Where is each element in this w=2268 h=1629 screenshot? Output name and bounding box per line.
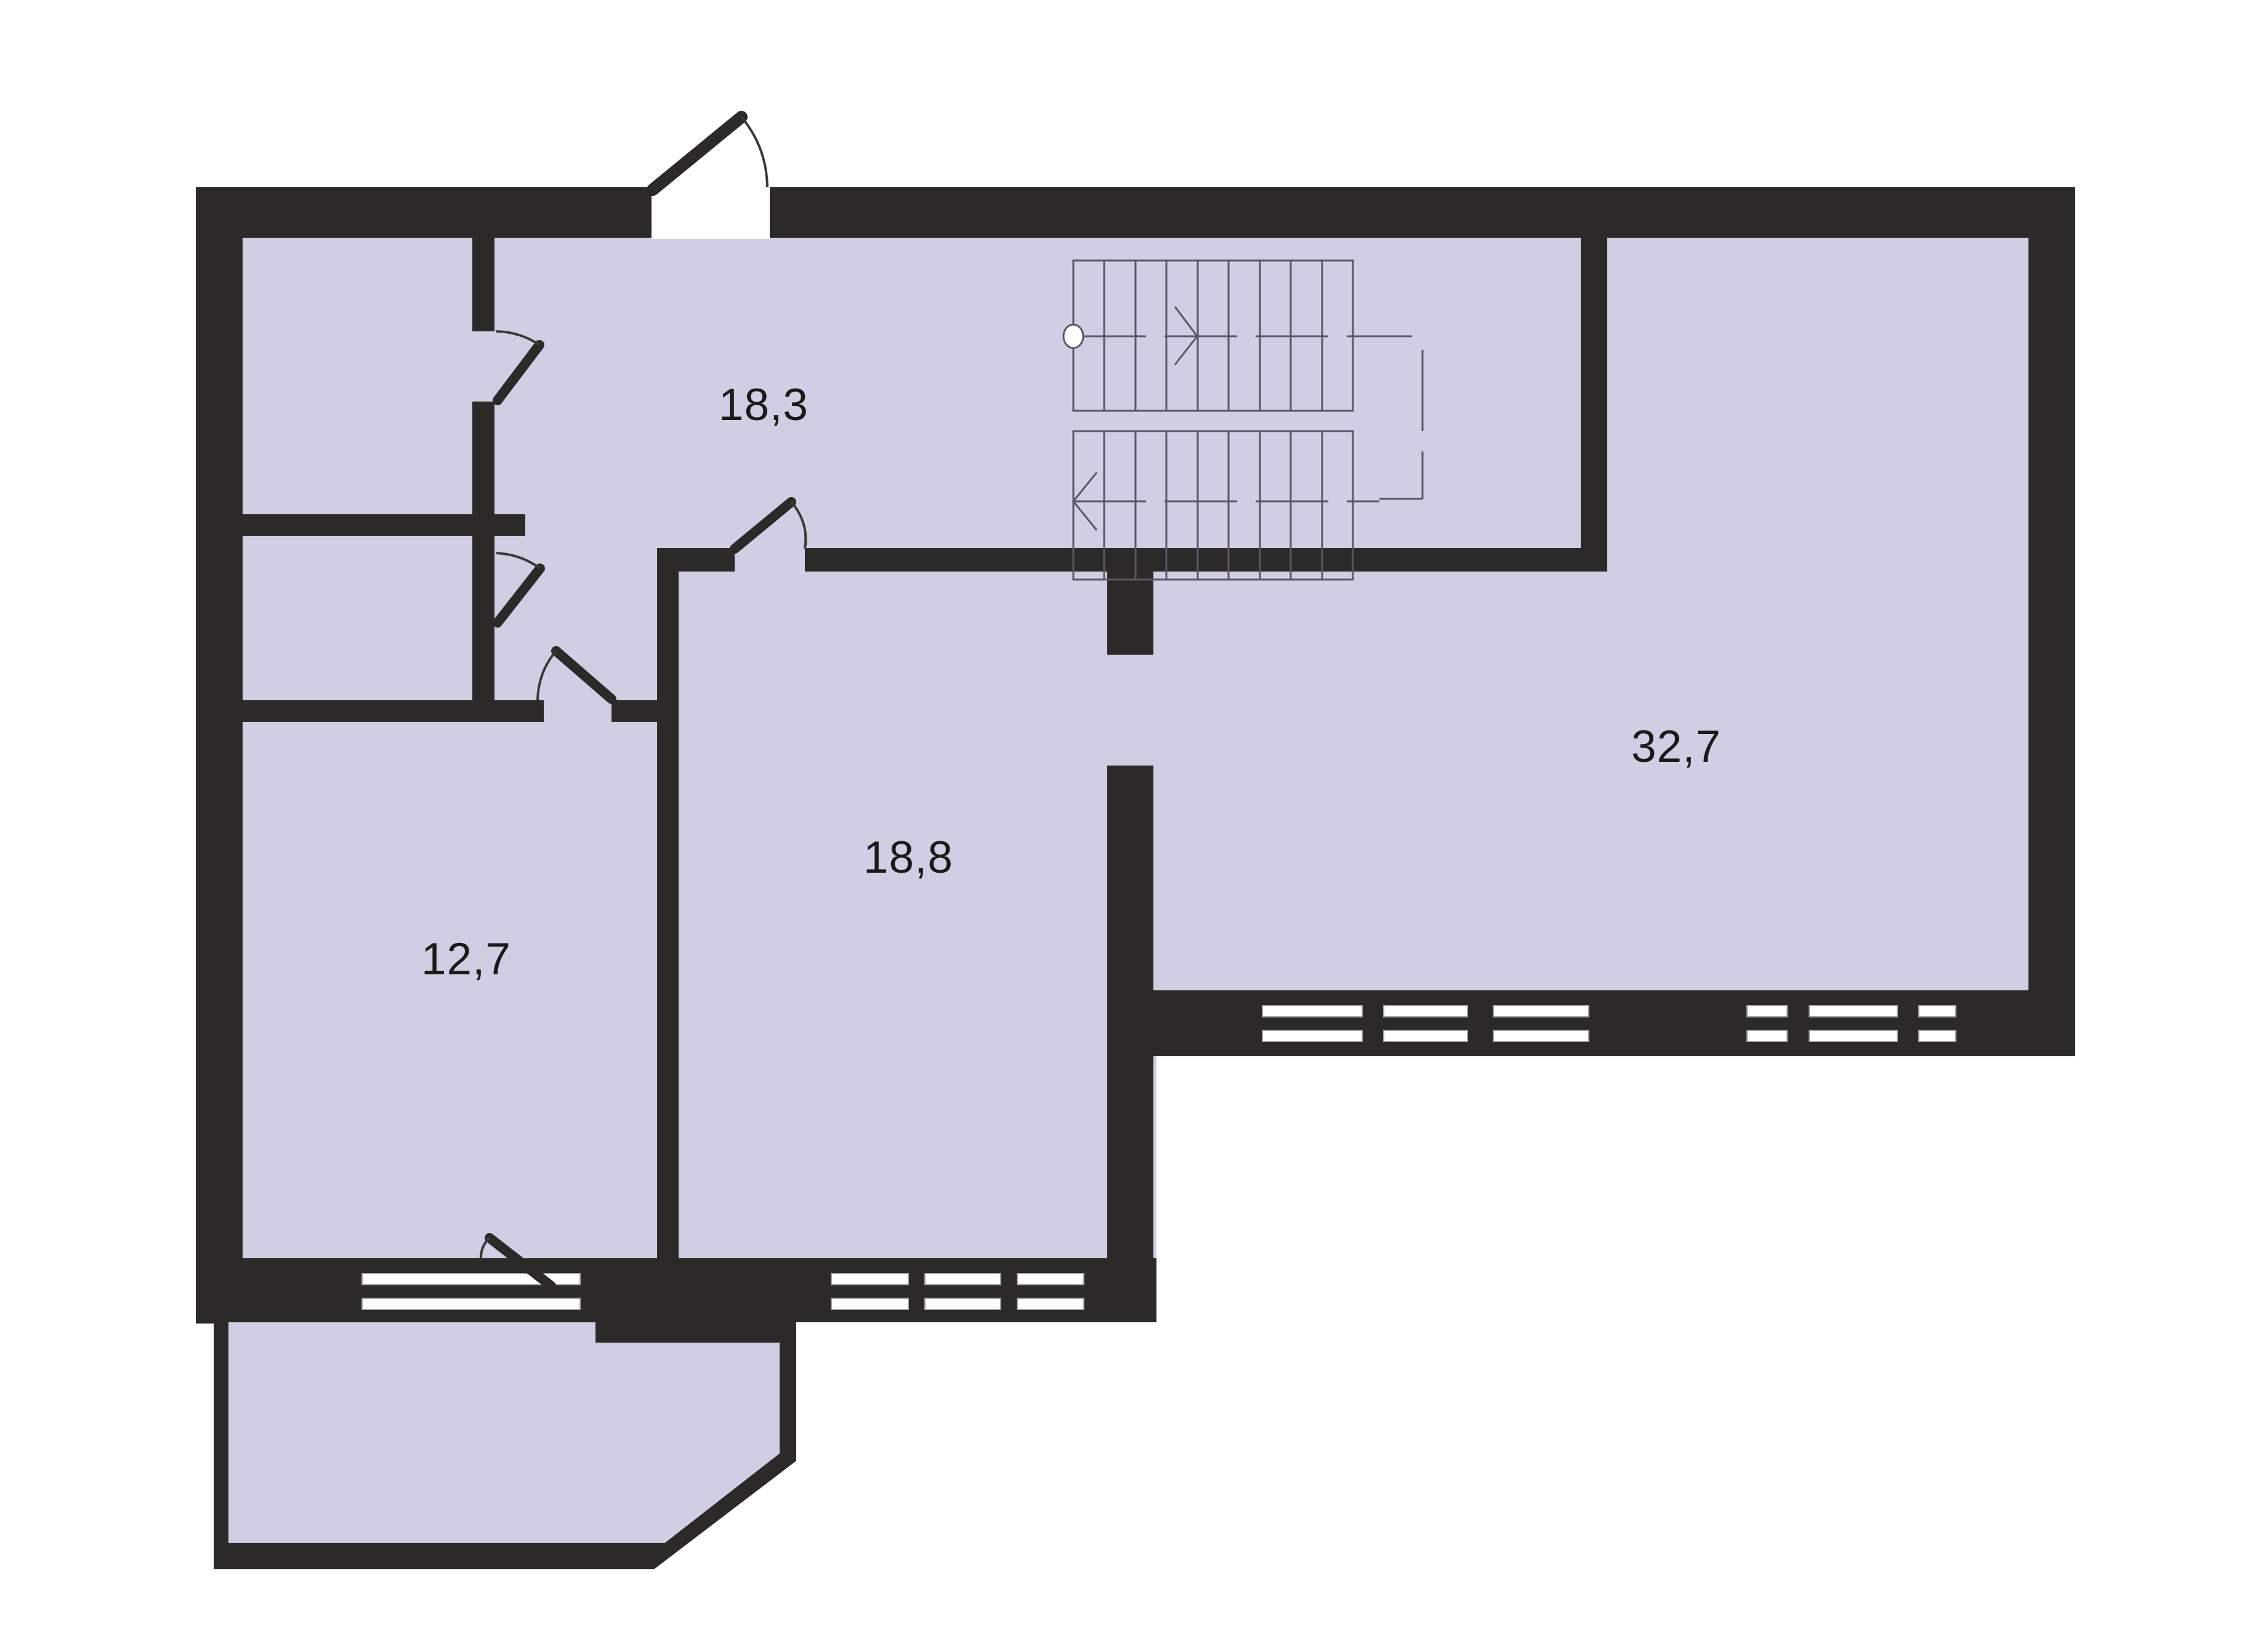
window-pane bbox=[1262, 1006, 1362, 1017]
window-pane bbox=[1017, 1274, 1084, 1285]
window-pane bbox=[1493, 1030, 1589, 1041]
entry-doorway-gap bbox=[652, 187, 770, 239]
room-label-hall: 18,3 bbox=[719, 380, 809, 430]
window-pane bbox=[1919, 1030, 1956, 1041]
wall-partition-c-main bbox=[1107, 766, 1153, 1258]
wall-bottom-living bbox=[1107, 990, 2075, 1056]
wall-partition-d bbox=[1581, 238, 1607, 548]
wall-bottom-left-block bbox=[196, 1258, 1156, 1322]
window-pane bbox=[831, 1298, 908, 1309]
floor-plan: 18,3 32,7 18,8 12,7 bbox=[0, 0, 2268, 1629]
wall-hall-south-right bbox=[805, 548, 1607, 572]
window-pane bbox=[1809, 1030, 1897, 1041]
window-pane bbox=[1262, 1030, 1362, 1041]
wall-partition-h2-left bbox=[243, 700, 544, 722]
stair-start-marker-icon bbox=[1063, 325, 1083, 348]
room-label-room-large: 32,7 bbox=[1631, 722, 1721, 772]
window-pane bbox=[1384, 1006, 1467, 1017]
window-pane bbox=[1809, 1006, 1897, 1017]
wall-partition-h2-right bbox=[611, 700, 658, 722]
window-pane bbox=[831, 1274, 908, 1285]
window-pane bbox=[925, 1274, 1001, 1285]
wall-top-left bbox=[196, 187, 652, 238]
entry-door-arc bbox=[741, 117, 767, 187]
window-pane bbox=[1493, 1006, 1589, 1017]
room-label-room-middle: 18,8 bbox=[863, 833, 953, 883]
wall-partition-h1 bbox=[243, 514, 525, 536]
wall-top-right bbox=[770, 187, 2075, 238]
window-pane bbox=[1919, 1006, 1956, 1017]
entry-door-leaf bbox=[653, 117, 741, 190]
window-pane bbox=[1384, 1030, 1467, 1041]
wall-left-outer bbox=[196, 187, 243, 1324]
room-label-room-small: 12,7 bbox=[421, 934, 511, 984]
wall-right-outer bbox=[2028, 187, 2075, 1056]
balcony-floor bbox=[228, 1322, 780, 1543]
wall-partition-c-top bbox=[1107, 570, 1153, 655]
balcony-window-pane bbox=[362, 1298, 580, 1309]
window-pane bbox=[1017, 1298, 1084, 1309]
wall-hall-south-left bbox=[657, 548, 735, 572]
wall-partition-a-upper bbox=[472, 238, 494, 331]
window-pane bbox=[925, 1298, 1001, 1309]
wall-partition-b bbox=[657, 548, 679, 1258]
wall-partition-a-lower bbox=[472, 402, 494, 700]
window-pane bbox=[1747, 1006, 1787, 1017]
window-pane bbox=[1747, 1030, 1787, 1041]
